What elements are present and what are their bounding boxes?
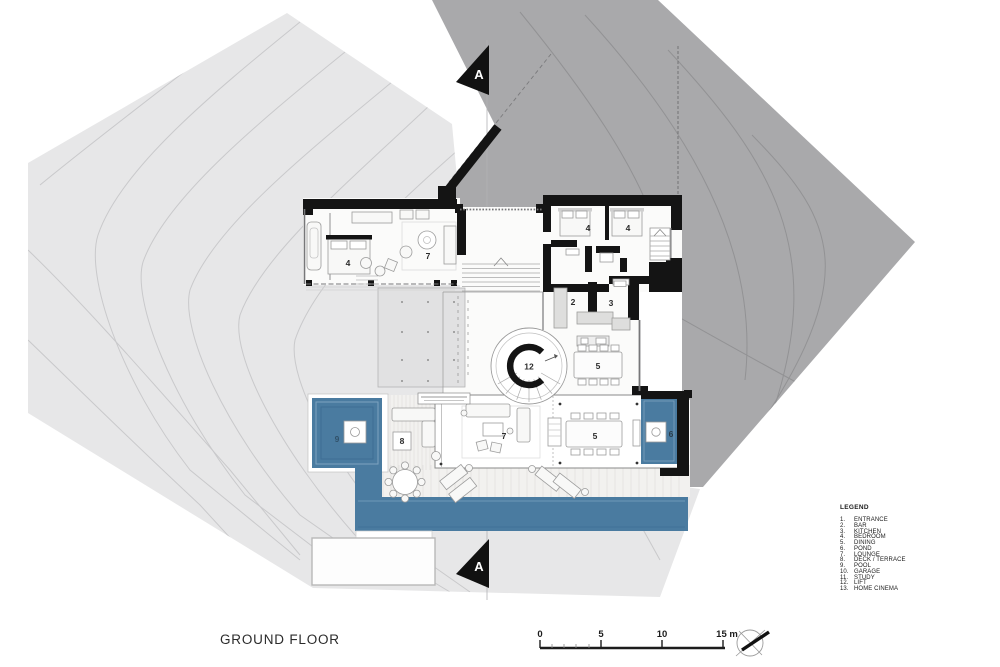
room-label-pool: 9 [335, 434, 340, 444]
section-marker-top-label: A [474, 67, 484, 82]
courtyard [378, 288, 465, 387]
scale-label-10: 10 [657, 629, 668, 640]
legend-heading: LEGEND [840, 504, 990, 511]
driveway-pad [312, 538, 435, 585]
room-label-lounge-lower: 7 [502, 431, 507, 441]
room-label-dining-lower: 5 [593, 431, 598, 441]
legend: LEGEND 1.ENTRANCE 2.BAR 3.KITCHEN 4.BEDR… [840, 504, 990, 593]
page-title: GROUND FLOOR [220, 632, 340, 647]
room-label-bedroom-2: 4 [626, 223, 631, 233]
scale-label-5: 5 [598, 629, 604, 640]
legend-item: 13.HOME CINEMA [840, 587, 990, 593]
scale-label-15m: 15 m [716, 629, 738, 640]
pond-platform [646, 422, 666, 442]
room-label-bar: 2 [571, 297, 576, 307]
north-arrow-icon [736, 630, 769, 656]
floor-plan-sheet: 4 7 4 4 2 3 12 5 5 7 8 9 6 A A [0, 0, 1000, 667]
room-label-bedroom-1: 4 [586, 223, 591, 233]
room-label-kitchen: 3 [609, 298, 614, 308]
scale-bar: 0 5 10 15 m [537, 629, 737, 648]
room-label-bedroom-west: 4 [346, 258, 351, 268]
deck-note-box [418, 393, 470, 404]
section-marker-bottom-label: A [474, 559, 484, 574]
room-label-lounge-west: 7 [426, 251, 431, 261]
room-label-lift: 12 [524, 362, 534, 372]
scale-label-0: 0 [537, 629, 542, 640]
pool-platform [344, 421, 366, 443]
room-label-pond: 6 [669, 429, 674, 439]
room-label-dining-upper: 5 [596, 361, 601, 371]
room-label-deck: 8 [400, 436, 405, 446]
